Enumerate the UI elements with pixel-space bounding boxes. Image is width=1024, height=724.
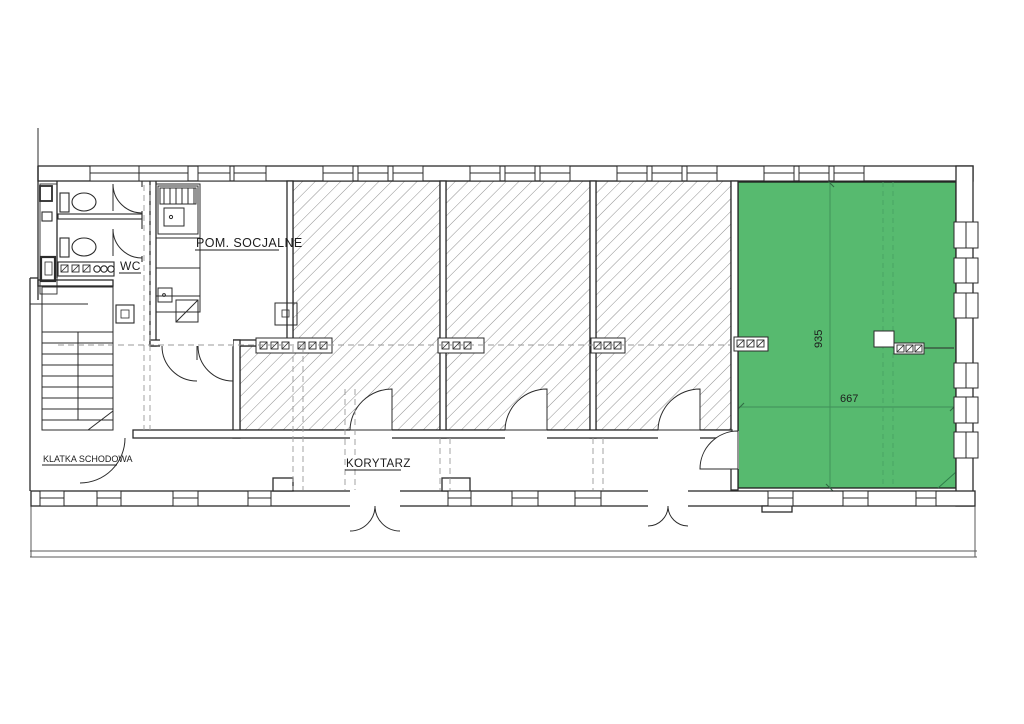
wall-social-right — [287, 181, 293, 346]
window-icon — [834, 166, 864, 181]
window-icon — [234, 166, 266, 181]
dimension-width: 667 — [840, 393, 858, 405]
window-icon — [393, 166, 423, 181]
window-icon — [768, 491, 793, 506]
window-icon — [97, 491, 121, 506]
kitchen-unit — [156, 184, 297, 325]
room-2-hatched — [446, 181, 590, 430]
window-icon — [512, 491, 538, 506]
pier-1 — [273, 478, 293, 491]
wall-corridor-north — [133, 430, 732, 438]
meter-box — [42, 212, 52, 221]
window-icon — [40, 491, 64, 506]
window-icon — [448, 491, 471, 506]
window-icon — [954, 293, 978, 318]
window-icon — [470, 166, 500, 181]
window-icon — [954, 397, 978, 423]
room-3-hatched — [596, 181, 731, 430]
washbasin-icon — [116, 305, 134, 323]
door-exterior-1-right-icon — [375, 506, 400, 531]
room-label-social: POM. SOCJALNE — [196, 236, 303, 250]
dimension-depth: 935 — [813, 330, 825, 348]
wall-ext-left — [233, 340, 240, 438]
window-icon — [505, 166, 535, 181]
window-icon — [358, 166, 388, 181]
room-1-hatched — [240, 181, 440, 430]
door-wc-stall2-icon — [113, 229, 142, 258]
window-icon — [323, 166, 353, 181]
wall-outline-left — [30, 166, 57, 491]
window-icon — [916, 491, 936, 506]
door-wc-stall1-icon — [113, 184, 142, 213]
window-icon — [575, 491, 601, 506]
staircase — [30, 287, 113, 430]
window-icon — [764, 166, 794, 181]
wall-room12 — [440, 181, 446, 438]
floor-plan: 667 935 — [0, 0, 1024, 724]
wall-room23 — [590, 181, 596, 438]
door-lobby-2-icon — [198, 346, 233, 381]
window-icon — [843, 491, 868, 506]
hatched-rooms — [240, 181, 731, 430]
urinal-icon — [41, 257, 55, 281]
vent-box — [40, 186, 52, 201]
window-icon — [799, 166, 829, 181]
door-exterior-2-left-icon — [648, 506, 668, 526]
toilet-icon — [60, 238, 96, 257]
window-icon — [173, 491, 198, 506]
highlighted-room-area[interactable] — [738, 182, 956, 488]
step-exterior — [762, 506, 792, 512]
window-icon — [954, 222, 978, 248]
window-icon — [954, 363, 978, 388]
door-exterior-1-left-icon — [350, 506, 375, 531]
door-lobby-1-icon — [162, 346, 197, 381]
room-label-wc: WC — [120, 259, 141, 273]
window-icon — [248, 491, 271, 506]
floor-plan-canvas: 667 935 — [0, 0, 1024, 724]
room-highlighted[interactable]: 667 935 — [736, 179, 958, 492]
wc-area — [40, 181, 142, 323]
window-icon — [90, 166, 188, 181]
window-icon — [687, 166, 717, 181]
window-icon — [540, 166, 570, 181]
door-exterior-2-right-icon — [668, 506, 688, 526]
window-icon — [954, 432, 978, 458]
room-label-corridor: KORYTARZ — [346, 458, 411, 470]
shaft-diagonal-icon — [176, 300, 198, 322]
room-label-staircase: KLATKA SCHODOWA — [43, 454, 133, 464]
window-icon — [617, 166, 647, 181]
stall-divider — [58, 214, 142, 219]
wall-social-left — [150, 181, 156, 346]
pier-2 — [442, 478, 470, 491]
window-icon — [652, 166, 682, 181]
window-icon — [954, 258, 978, 283]
toilet-icon — [60, 193, 96, 212]
window-icon — [198, 166, 230, 181]
